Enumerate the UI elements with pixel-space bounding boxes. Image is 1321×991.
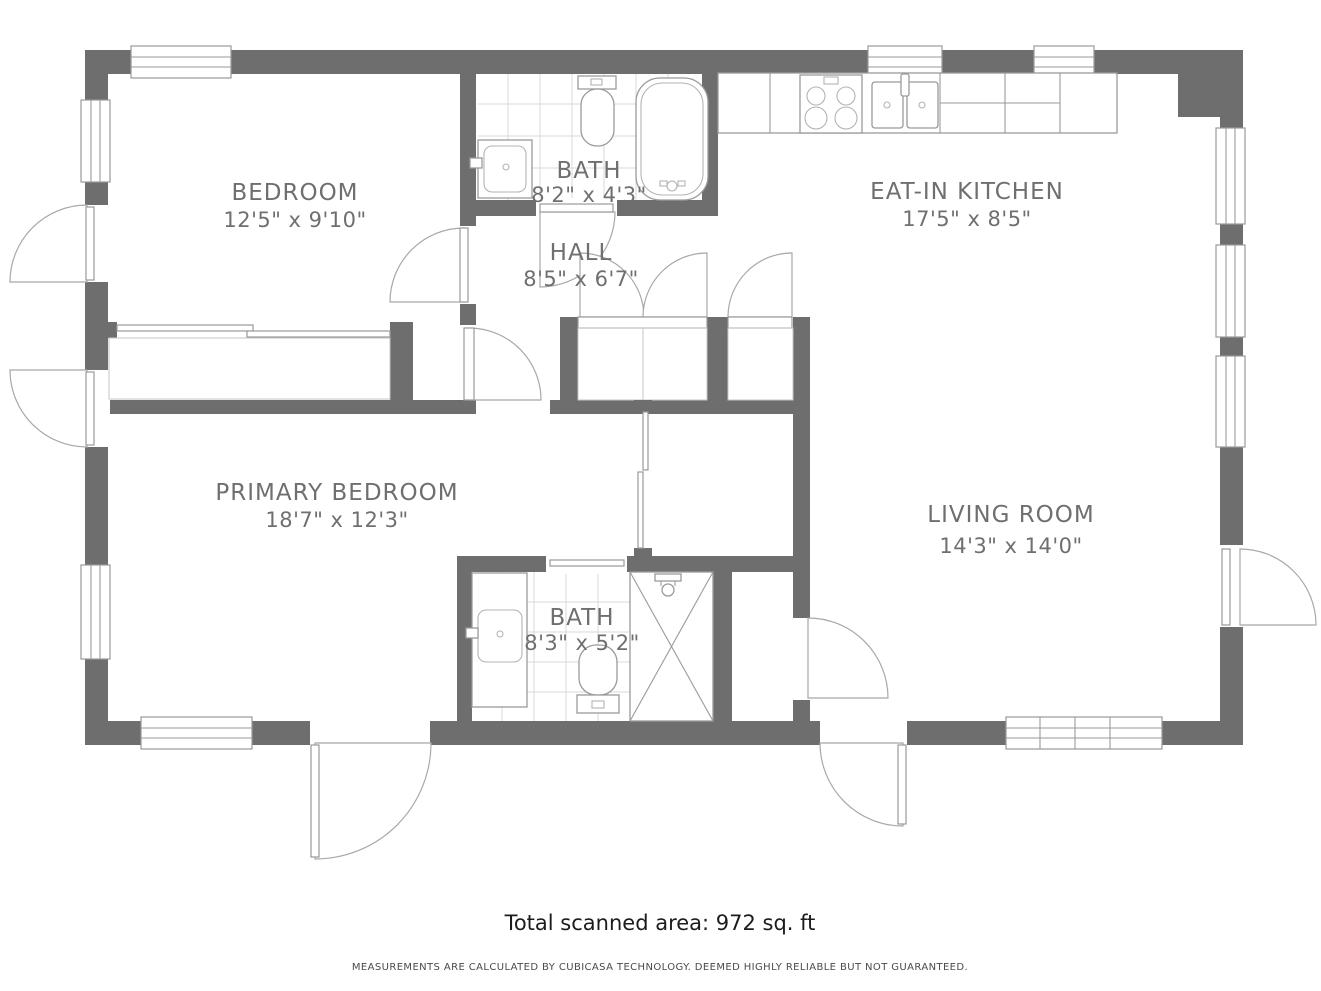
primary-bedroom-dims: 18'7" x 12'3" [265, 508, 408, 532]
vanity-sink-bottom-icon [466, 573, 527, 707]
floor-plan-drawing: BEDROOM 12'5" x 9'10" BATH 8'2" x 4'3" H… [0, 0, 1321, 991]
kitchen-fixtures [718, 73, 1117, 133]
living-room-label: LIVING ROOM [927, 502, 1095, 528]
bath-bottom-label: BATH [549, 605, 614, 631]
toilet-bottom-icon [577, 645, 619, 713]
total-scanned-area-text: Total scanned area: 972 sq. ft [504, 911, 816, 935]
floor-plan-page: BEDROOM 12'5" x 9'10" BATH 8'2" x 4'3" H… [0, 0, 1321, 991]
hall-label: HALL [550, 240, 613, 266]
window-right-1 [1216, 128, 1245, 224]
primary-bedroom-label: PRIMARY BEDROOM [215, 480, 458, 506]
door-closet-b [728, 253, 792, 328]
door-exterior-bottom-left [310, 719, 431, 859]
hall-closet-b [728, 328, 793, 400]
window-right-3 [1216, 356, 1245, 447]
window-bedroom-left [81, 100, 110, 182]
door-exterior-right [1216, 545, 1316, 627]
bathtub-icon [636, 78, 708, 200]
hall-dims: 8'5" x 6'7" [523, 267, 639, 291]
bedroom-label: BEDROOM [231, 180, 358, 206]
window-living-bottom [1006, 717, 1162, 749]
door-passage-living [791, 618, 888, 700]
disclaimer-text: MEASUREMENTS ARE CALCULATED BY CUBICASA … [352, 962, 968, 973]
doors [10, 198, 1316, 859]
kitchen-label: EAT-IN KITCHEN [870, 179, 1064, 205]
bedroom-dims: 12'5" x 9'10" [223, 208, 366, 232]
sliding-door-bath-bottom [546, 554, 627, 574]
door-exterior-bottom-living [820, 719, 907, 826]
window-primary-bottom [141, 717, 252, 749]
footer: Total scanned area: 972 sq. ft MEASUREME… [352, 911, 968, 973]
living-room-dims: 14'3" x 14'0" [939, 534, 1082, 558]
vanity-sink-top-icon [470, 140, 532, 198]
toilet-top-icon [578, 76, 616, 146]
bath-top-dims: 8'2" x 4'3" [531, 183, 647, 207]
bath-bottom-dims: 8'3" x 5'2" [524, 631, 640, 655]
door-primary-bedroom [464, 328, 550, 416]
bath-top-label: BATH [556, 158, 621, 184]
door-exterior-left-lower [10, 370, 110, 447]
bedroom-closet [109, 325, 390, 399]
door-bedroom [390, 226, 478, 304]
stove-icon [800, 75, 862, 133]
pocket-door-primary [634, 400, 652, 564]
hall-closet-a [578, 328, 707, 400]
closets [109, 325, 793, 574]
window-primary-left [81, 565, 110, 659]
kitchen-dims: 17'5" x 8'5" [902, 207, 1031, 231]
door-exterior-left-upper [10, 205, 110, 282]
shower-icon [630, 572, 713, 721]
window-right-2 [1216, 245, 1245, 337]
window-bedroom-top [131, 46, 231, 78]
